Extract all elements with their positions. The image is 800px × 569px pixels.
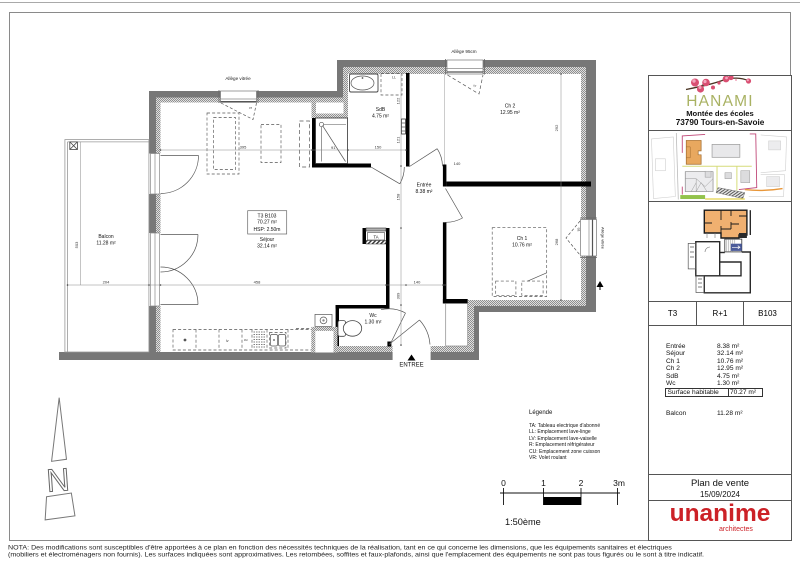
svg-text:Allège vitrée: Allège vitrée: [601, 227, 606, 250]
svg-text:Allège vitrée: Allège vitrée: [225, 76, 251, 81]
svg-text:158: 158: [396, 193, 401, 200]
svg-text:vr: vr: [473, 83, 478, 88]
svg-text:292: 292: [554, 124, 559, 131]
svg-text:70.27 m²: 70.27 m²: [257, 220, 277, 226]
svg-text:Séjour: Séjour: [260, 237, 275, 243]
svg-text:1: 1: [541, 478, 546, 488]
svg-text:32.14 m²: 32.14 m²: [257, 244, 277, 250]
svg-text:ENTREE: ENTREE: [399, 363, 423, 369]
svg-text:TA: TA: [373, 235, 378, 240]
svg-text:SdB: SdB: [376, 107, 386, 113]
svg-text:3m: 3m: [613, 478, 625, 488]
svg-text:91: 91: [331, 145, 336, 150]
svg-text:Entrée: Entrée: [417, 183, 432, 189]
svg-text:cu: cu: [244, 338, 248, 342]
svg-text:395: 395: [240, 145, 247, 150]
svg-text:12.95 m²: 12.95 m²: [500, 110, 520, 116]
svg-text:1.30 m²: 1.30 m²: [365, 320, 382, 326]
svg-text:150: 150: [375, 145, 382, 150]
svg-text:HSP: 2.50m: HSP: 2.50m: [254, 227, 281, 233]
svg-text:309: 309: [396, 292, 401, 299]
svg-text:lv: lv: [226, 339, 229, 343]
svg-text:4.75 m²: 4.75 m²: [372, 114, 389, 120]
svg-text:LL: LL: [392, 76, 396, 80]
svg-text:0: 0: [501, 478, 506, 488]
svg-text:N: N: [45, 461, 71, 499]
svg-text:122: 122: [396, 97, 401, 104]
svg-text:458: 458: [254, 280, 261, 285]
svg-text:140: 140: [414, 280, 421, 285]
svg-text:10.76 m²: 10.76 m²: [512, 243, 532, 249]
svg-text:11.28 m²: 11.28 m²: [96, 241, 116, 247]
svg-text:Wc: Wc: [369, 313, 377, 319]
svg-text:121: 121: [396, 136, 401, 143]
svg-text:268: 268: [554, 238, 559, 245]
svg-text:Allège 95cm: Allège 95cm: [451, 49, 476, 54]
svg-text:2: 2: [579, 478, 584, 488]
svg-text:Balcon: Balcon: [98, 234, 114, 240]
svg-text:Ch 2: Ch 2: [505, 104, 516, 110]
svg-text:Ch 1: Ch 1: [517, 236, 528, 242]
svg-text:140: 140: [454, 161, 461, 166]
svg-text:8.38 m²: 8.38 m²: [416, 189, 433, 195]
svg-text:503: 503: [74, 241, 79, 248]
svg-text:204: 204: [103, 280, 110, 285]
